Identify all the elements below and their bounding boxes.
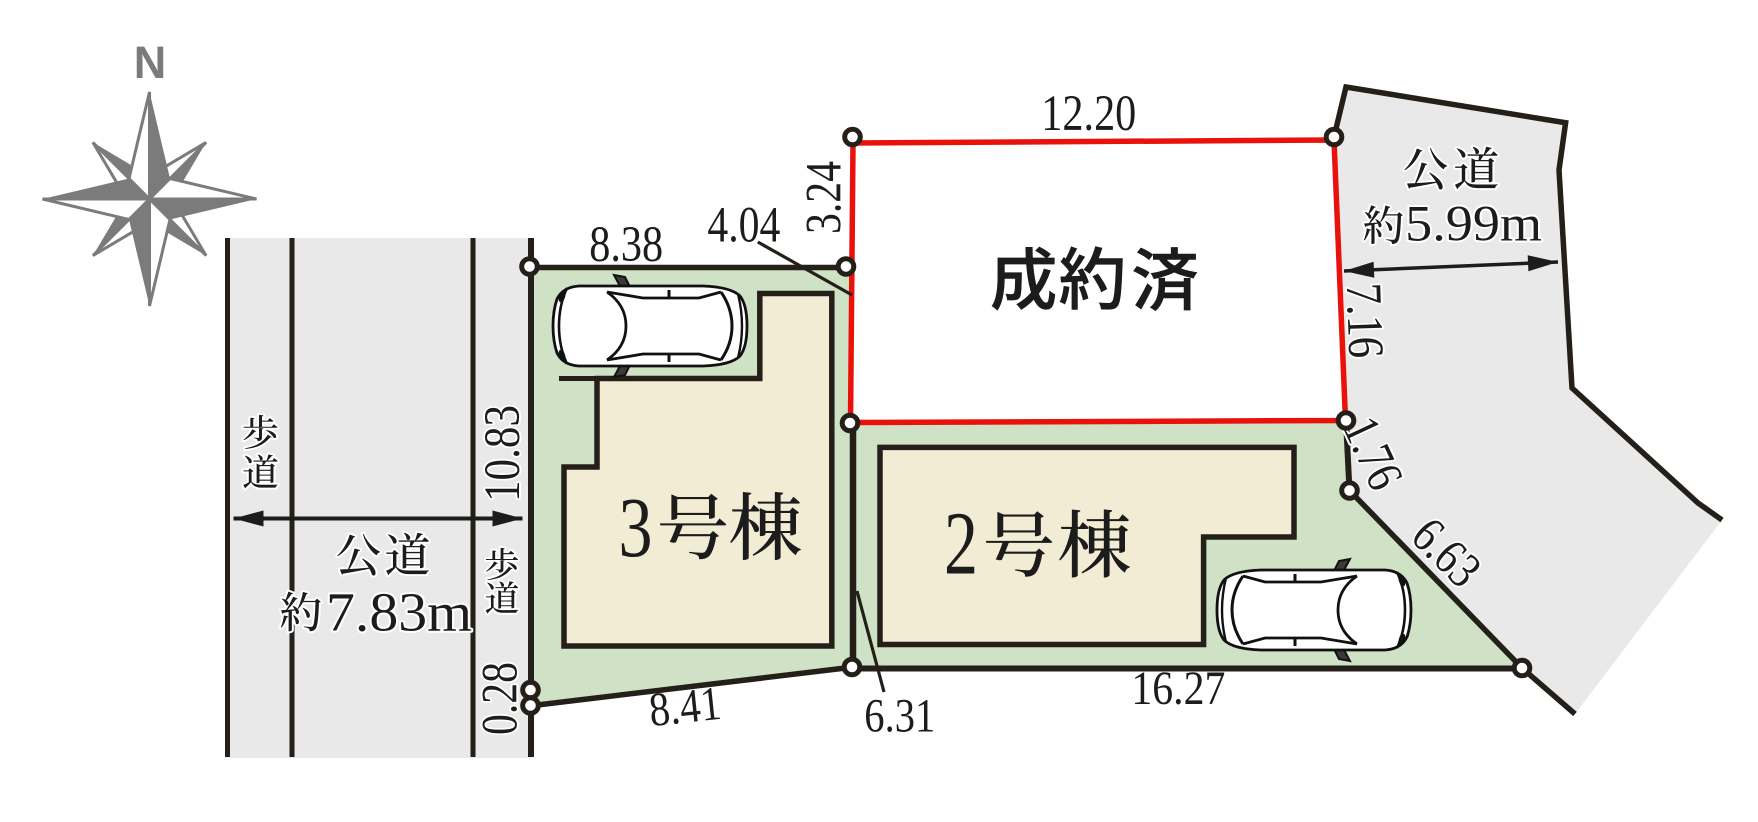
svg-text:12.20: 12.20	[1041, 86, 1136, 142]
svg-text:N: N	[134, 37, 167, 88]
svg-text:16.27: 16.27	[1131, 662, 1225, 715]
svg-text:5.99m: 5.99m	[1405, 197, 1542, 253]
svg-text:8.41: 8.41	[646, 677, 723, 737]
svg-text:7.16: 7.16	[1335, 282, 1394, 359]
svg-text:6.31: 6.31	[864, 690, 935, 743]
svg-text:0.28: 0.28	[473, 662, 529, 735]
svg-text:7.83m: 7.83m	[326, 582, 472, 643]
svg-text:3: 3	[619, 479, 653, 575]
svg-text:3.24: 3.24	[797, 161, 853, 234]
svg-text:10.83: 10.83	[475, 405, 531, 502]
svg-text:4.04: 4.04	[707, 197, 780, 253]
svg-text:2: 2	[944, 495, 978, 594]
svg-text:8.38: 8.38	[589, 217, 663, 273]
